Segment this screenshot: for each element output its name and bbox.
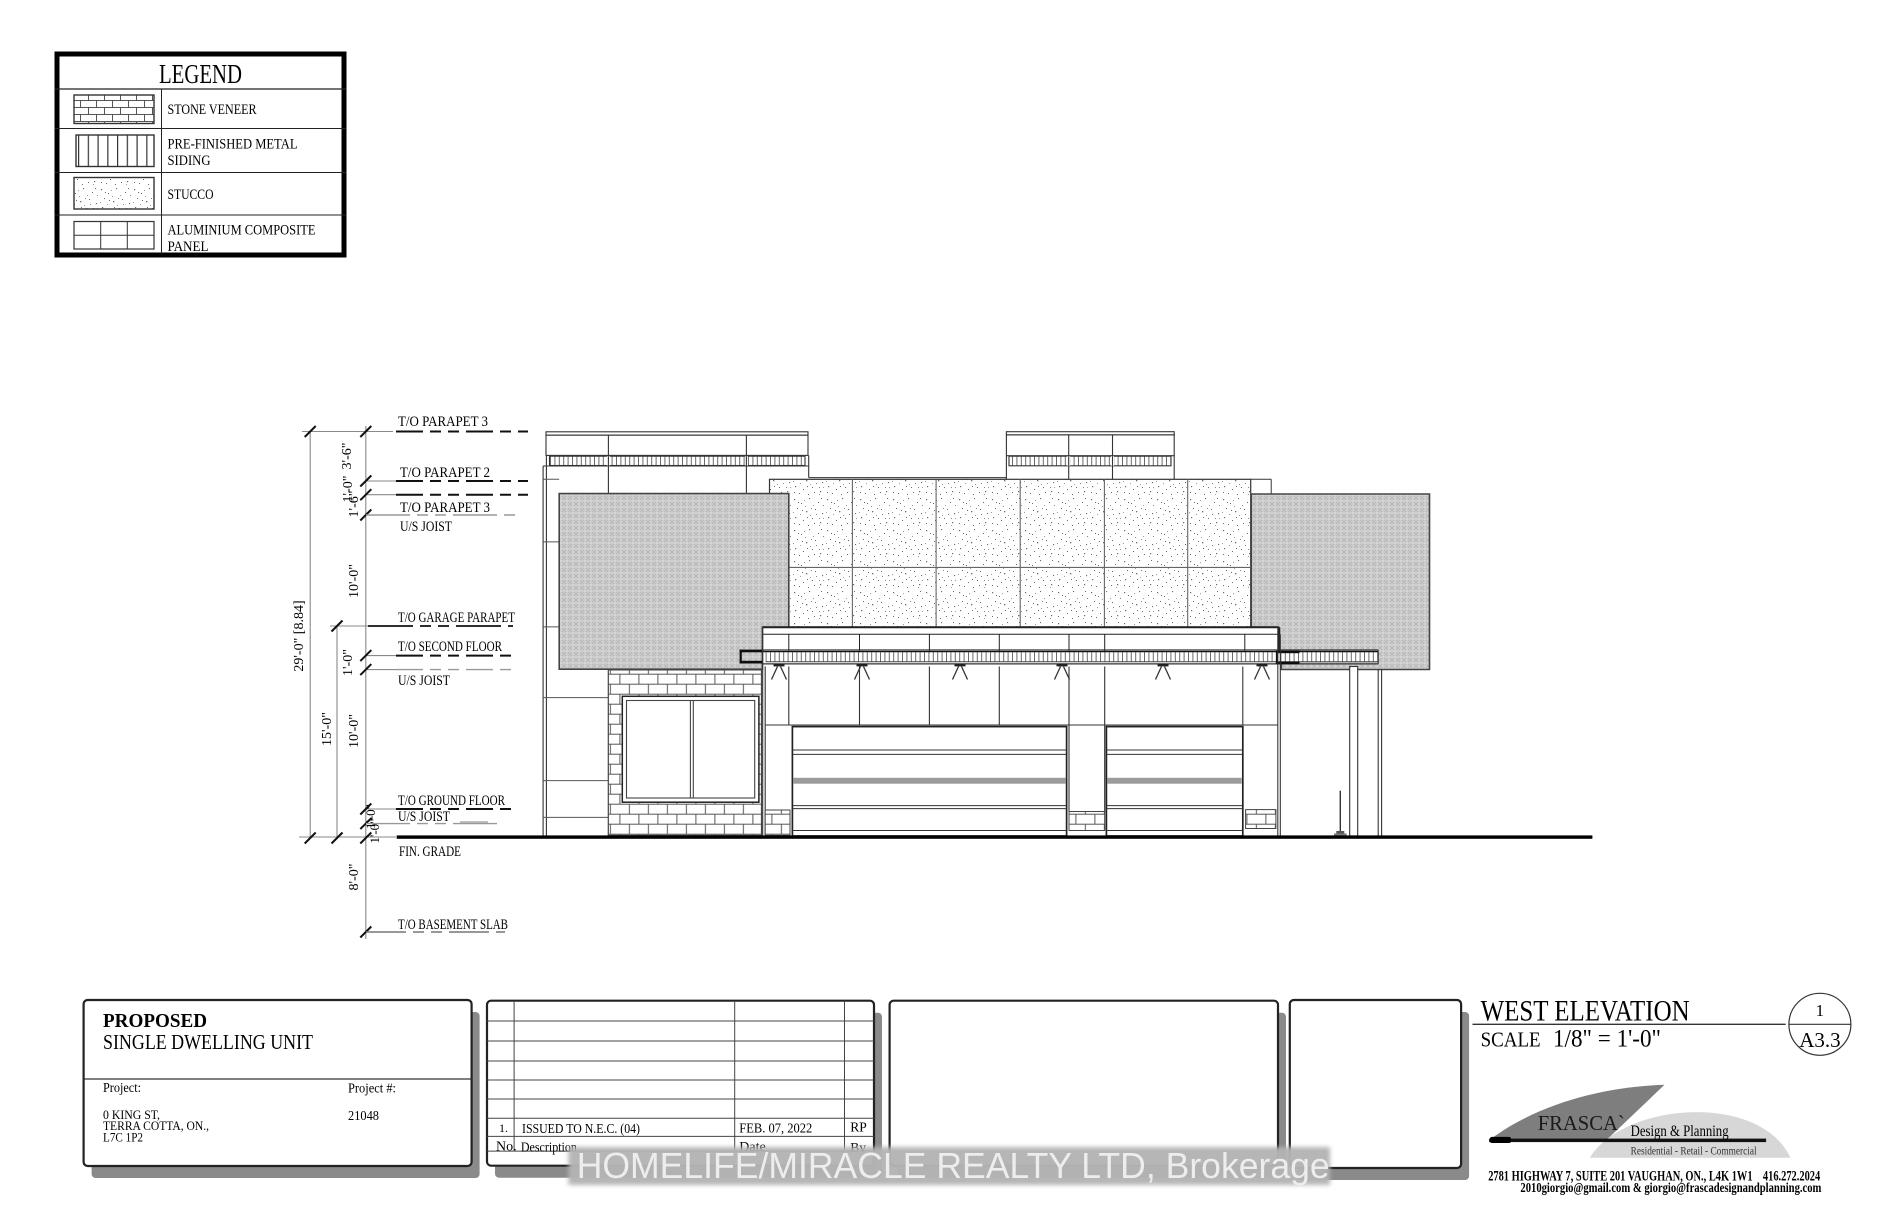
svg-text:Residential - Retail - Commerc: Residential - Retail - Commercial bbox=[1631, 1146, 1757, 1158]
svg-text:T/O PARAPET 2: T/O PARAPET 2 bbox=[400, 465, 490, 481]
svg-text:Project #:: Project #: bbox=[348, 1082, 396, 1097]
svg-text:3'-6": 3'-6" bbox=[340, 443, 355, 470]
svg-text:FRASCA`: FRASCA` bbox=[1538, 1111, 1625, 1135]
svg-text:HOMELIFE/MIRACLE REALTY LTD, B: HOMELIFE/MIRACLE REALTY LTD, Brokerage bbox=[577, 1145, 1330, 1186]
svg-text:STONE VENEER: STONE VENEER bbox=[168, 102, 257, 118]
svg-text:10'-0": 10'-0" bbox=[347, 564, 362, 598]
svg-text:SIDING: SIDING bbox=[168, 153, 211, 169]
svg-text:10'-0": 10'-0" bbox=[347, 714, 362, 748]
svg-text:15'-0": 15'-0" bbox=[320, 712, 335, 746]
svg-text:1'-0": 1'-0" bbox=[367, 819, 382, 844]
svg-text:21048: 21048 bbox=[348, 1108, 379, 1123]
svg-text:FIN. GRADE: FIN. GRADE bbox=[399, 844, 461, 860]
svg-text:Project:: Project: bbox=[103, 1081, 141, 1096]
svg-text:U/S JOIST: U/S JOIST bbox=[400, 519, 452, 535]
svg-text:PROPOSED: PROPOSED bbox=[103, 1010, 207, 1032]
svg-text:T/O BASEMENT SLAB: T/O BASEMENT SLAB bbox=[398, 917, 508, 933]
svg-text:PANEL: PANEL bbox=[168, 239, 209, 255]
svg-text:STUCCO: STUCCO bbox=[168, 187, 214, 203]
svg-text:1'-0": 1'-0" bbox=[341, 649, 356, 676]
svg-text:1.: 1. bbox=[499, 1121, 508, 1135]
svg-text:T/O SECOND FLOOR: T/O SECOND FLOOR bbox=[398, 639, 502, 655]
svg-text:LEGEND: LEGEND bbox=[159, 59, 242, 89]
svg-text:1'-6": 1'-6" bbox=[347, 491, 362, 518]
svg-text:SINGLE DWELLING UNIT: SINGLE DWELLING UNIT bbox=[103, 1030, 313, 1054]
svg-text:2010giorgio@gmail.com & giorgi: 2010giorgio@gmail.com & giorgio@frascade… bbox=[1520, 1181, 1821, 1196]
svg-text:PRE-FINISHED METAL: PRE-FINISHED METAL bbox=[168, 137, 298, 153]
svg-text:RP: RP bbox=[850, 1120, 867, 1135]
svg-text:U/S JOIST: U/S JOIST bbox=[398, 809, 450, 825]
svg-text:FEB. 07, 2022: FEB. 07, 2022 bbox=[739, 1122, 812, 1137]
svg-text:T/O GARAGE PARAPET: T/O GARAGE PARAPET bbox=[398, 610, 515, 626]
svg-text:WEST ELEVATION: WEST ELEVATION bbox=[1481, 995, 1690, 1028]
svg-text:29'-0" [8.84]: 29'-0" [8.84] bbox=[292, 600, 307, 671]
svg-text:T/O PARAPET 3: T/O PARAPET 3 bbox=[398, 414, 488, 430]
svg-text:L7C 1P2: L7C 1P2 bbox=[103, 1130, 143, 1145]
svg-text:SCALE: SCALE bbox=[1481, 1028, 1541, 1052]
svg-text:8'-0": 8'-0" bbox=[347, 864, 362, 891]
svg-text:A3.3: A3.3 bbox=[1799, 1028, 1840, 1052]
svg-text:Design & Planning: Design & Planning bbox=[1631, 1123, 1729, 1140]
svg-text:1/8" = 1'-0": 1/8" = 1'-0" bbox=[1553, 1026, 1661, 1053]
svg-text:1: 1 bbox=[1816, 1001, 1825, 1020]
svg-text:T/O GROUND FLOOR: T/O GROUND FLOOR bbox=[398, 793, 505, 809]
svg-text:No.: No. bbox=[496, 1140, 517, 1155]
svg-text:ALUMINIUM COMPOSITE: ALUMINIUM COMPOSITE bbox=[168, 223, 316, 239]
svg-text:ISSUED TO N.E.C. (04): ISSUED TO N.E.C. (04) bbox=[522, 1122, 640, 1137]
svg-text:U/S JOIST: U/S JOIST bbox=[398, 673, 450, 689]
svg-text:T/O PARAPET 3: T/O PARAPET 3 bbox=[400, 500, 490, 516]
